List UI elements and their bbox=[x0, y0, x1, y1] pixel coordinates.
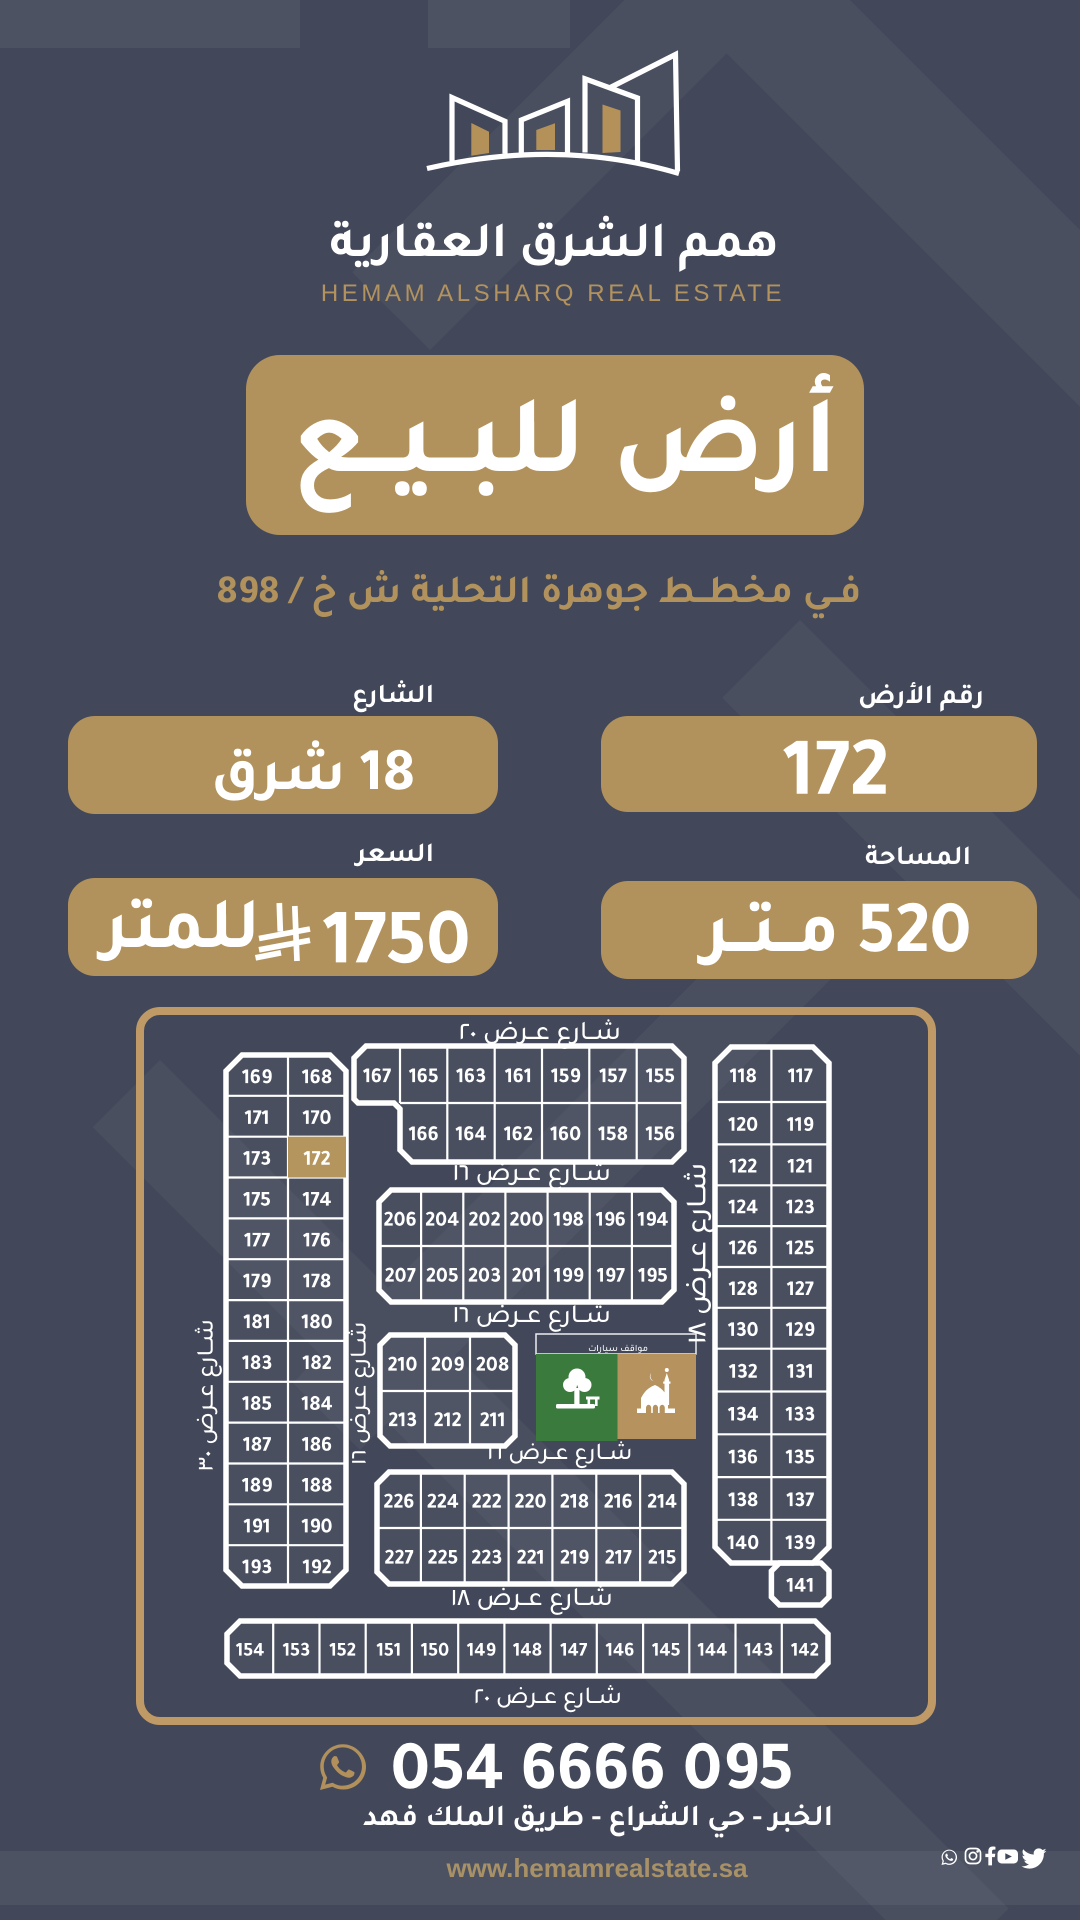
svg-text:HEMAM ALSHARQ REAL ESTATE: HEMAM ALSHARQ REAL ESTATE bbox=[321, 280, 785, 307]
svg-text:www.hemamrealstate.sa: www.hemamrealstate.sa bbox=[445, 1853, 748, 1883]
